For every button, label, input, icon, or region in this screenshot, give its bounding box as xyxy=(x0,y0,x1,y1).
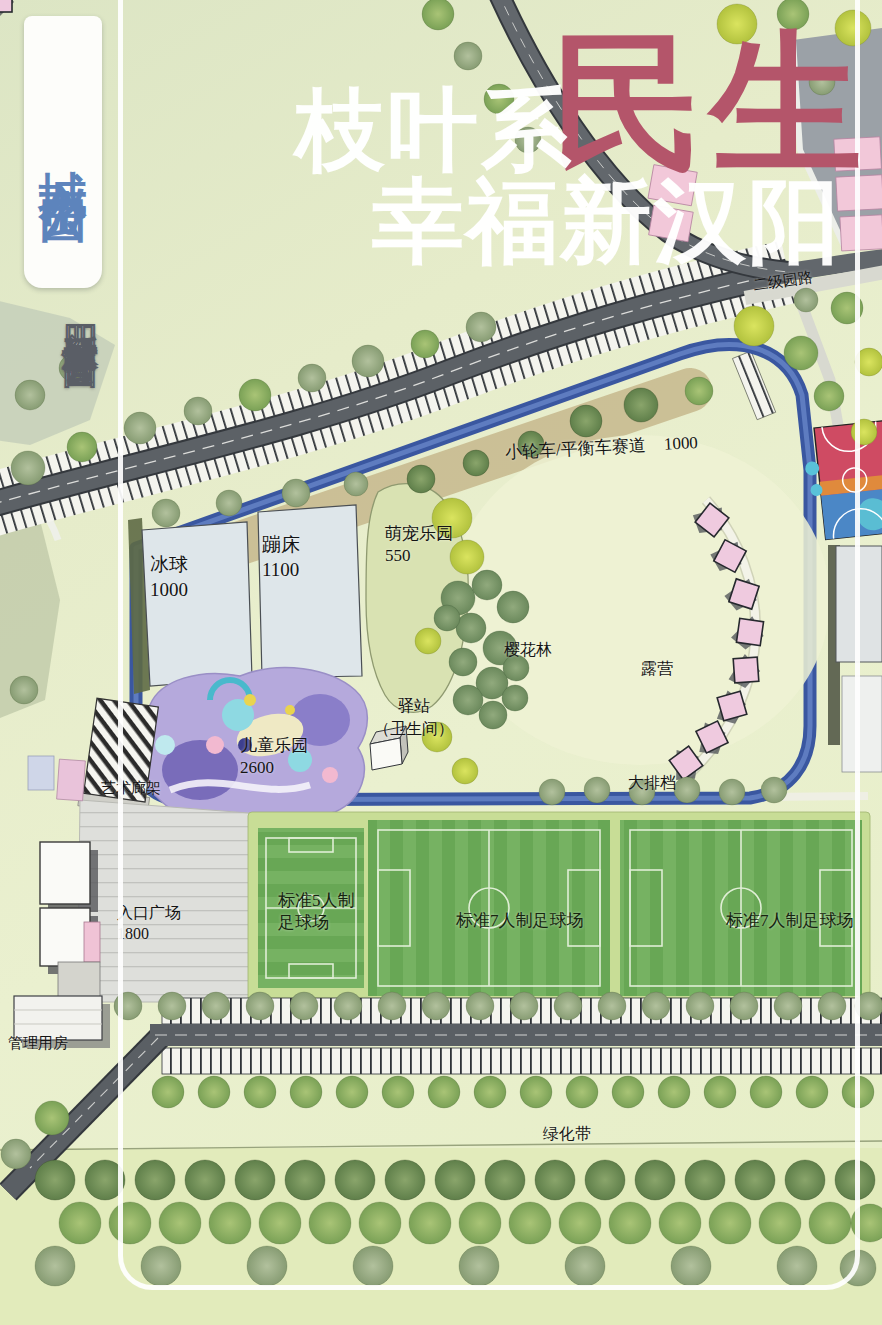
management-text: 管理用房 xyxy=(8,1035,68,1051)
camping-text: 露营 xyxy=(641,660,673,677)
kids-park-text: 儿童乐园 xyxy=(240,736,308,755)
station-text: 驿站 xyxy=(398,697,430,714)
headline-line2: 幸福新汉阳 xyxy=(372,160,842,284)
trampoline-area: 1100 xyxy=(262,559,299,580)
soccer-field-7-mid xyxy=(368,820,610,996)
kids-park-area: 2600 xyxy=(240,758,274,777)
label-soccer5: 标准5人制 足球场 xyxy=(278,890,355,934)
label-trampoline: 蹦床 1100 xyxy=(262,533,300,582)
side-title: 城市公园 xyxy=(31,132,95,172)
pet-park-text: 萌宠乐园 xyxy=(385,524,453,543)
art-pergola-text: 艺术廊架 xyxy=(101,780,161,796)
station-note-text: （卫生间） xyxy=(374,720,454,737)
label-soccer7-right: 标准7人制足球场 xyxy=(726,910,854,932)
label-kids-park: 儿童乐园 2600 xyxy=(240,735,308,779)
bike-track-area: 1000 xyxy=(663,433,698,454)
ice-hockey-court xyxy=(142,522,252,686)
label-station-note: （卫生间） xyxy=(374,719,454,740)
label-green-belt: 绿化带 xyxy=(543,1124,591,1145)
label-entrance-plaza: 入口广场 1800 xyxy=(117,903,181,945)
food-stalls-text: 大排档 xyxy=(628,774,676,791)
entrance-plaza-area: 1800 xyxy=(117,925,149,942)
ice-hockey-area: 1000 xyxy=(150,579,188,600)
green-belt-text: 绿化带 xyxy=(543,1125,591,1142)
entrance-plaza-text: 入口广场 xyxy=(117,904,181,921)
label-cherry-forest: 樱花林 xyxy=(504,640,552,661)
side-title-bar: 城市公园 xyxy=(24,16,102,288)
soccer7-right-text: 标准7人制足球场 xyxy=(726,911,854,930)
trampoline-court xyxy=(258,505,362,678)
label-soccer7-mid: 标准7人制足球场 xyxy=(456,910,584,932)
park-masterplan-poster: 二级园路 小轮车/平衡车赛道 1000 冰球 1000 蹦床 1100 萌宠乐园… xyxy=(0,0,882,1325)
soccer7-mid-text: 标准7人制足球场 xyxy=(456,911,584,930)
label-art-pergola: 艺术廊架 xyxy=(101,779,161,799)
ice-hockey-text: 冰球 xyxy=(150,554,188,575)
label-food-stalls: 大排档 xyxy=(628,773,676,794)
label-pet-park: 萌宠乐园 550 xyxy=(385,523,453,567)
cherry-forest-text: 樱花林 xyxy=(504,641,552,658)
soccer5-line2: 足球场 xyxy=(278,913,329,932)
label-ice-hockey: 冰球 1000 xyxy=(150,553,188,602)
soccer-field-7-right xyxy=(620,820,862,996)
trampoline-text: 蹦床 xyxy=(262,534,300,555)
side-subtitle: 四新体育公园 xyxy=(56,298,103,334)
label-camping: 露营 xyxy=(641,659,673,680)
label-management: 管理用房 xyxy=(8,1034,68,1054)
soccer5-line1: 标准5人制 xyxy=(278,891,355,910)
pet-park-area-text: 550 xyxy=(385,546,411,565)
label-station: 驿站 xyxy=(398,696,430,717)
